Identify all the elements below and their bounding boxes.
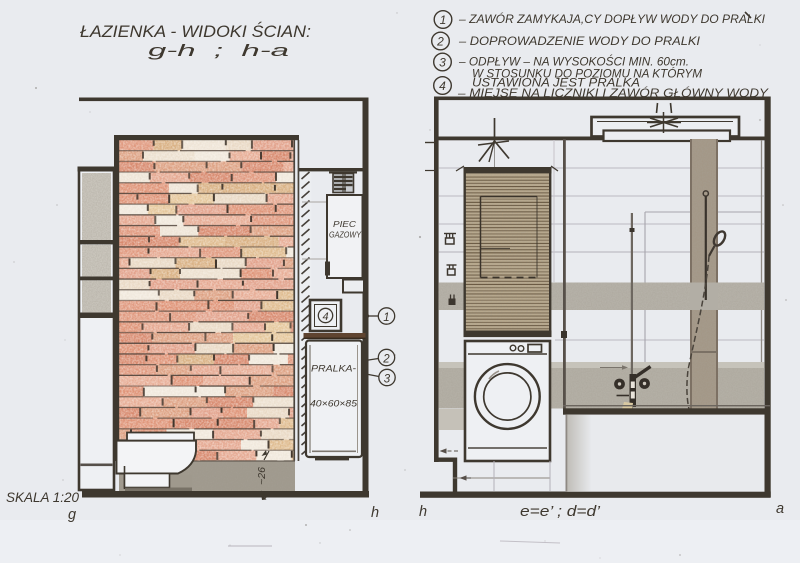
svg-text:1: 1 bbox=[440, 13, 447, 27]
svg-text:3: 3 bbox=[384, 373, 391, 385]
svg-text:1: 1 bbox=[383, 312, 389, 324]
svg-text:2: 2 bbox=[436, 35, 444, 49]
svg-text:40×60×85: 40×60×85 bbox=[310, 399, 358, 409]
svg-text:PIEC: PIEC bbox=[333, 219, 357, 229]
svg-text:– ZAWÓR ZAMYKAJA,CY DOPŁYW WOD: – ZAWÓR ZAMYKAJA,CY DOPŁYW WODY DO PRALK… bbox=[458, 11, 766, 26]
svg-text:g-h ; h-a: g-h ; h-a bbox=[148, 41, 289, 60]
svg-text:ŁAZIENKA - WIDOKI ŚCIAN:: ŁAZIENKA - WIDOKI ŚCIAN: bbox=[80, 22, 311, 41]
svg-text:4: 4 bbox=[322, 311, 328, 323]
svg-text:– DOPROWADZENIE WODY DO PRALKI: – DOPROWADZENIE WODY DO PRALKI bbox=[458, 34, 701, 48]
svg-text:PRALKA-: PRALKA- bbox=[311, 364, 356, 374]
svg-text:h: h bbox=[371, 505, 379, 521]
svg-text:3: 3 bbox=[439, 56, 446, 70]
svg-text:a: a bbox=[776, 501, 784, 517]
svg-text:e=e’ ; d=d’: e=e’ ; d=d’ bbox=[520, 503, 601, 520]
svg-text:SKALA 1:20: SKALA 1:20 bbox=[6, 490, 79, 505]
svg-text:4: 4 bbox=[439, 79, 446, 93]
svg-text:h: h bbox=[419, 504, 427, 520]
svg-text:GAZOWY: GAZOWY bbox=[329, 230, 362, 240]
svg-text:2: 2 bbox=[382, 353, 390, 365]
svg-text:~26: ~26 bbox=[256, 467, 268, 485]
svg-text:g: g bbox=[68, 507, 76, 523]
